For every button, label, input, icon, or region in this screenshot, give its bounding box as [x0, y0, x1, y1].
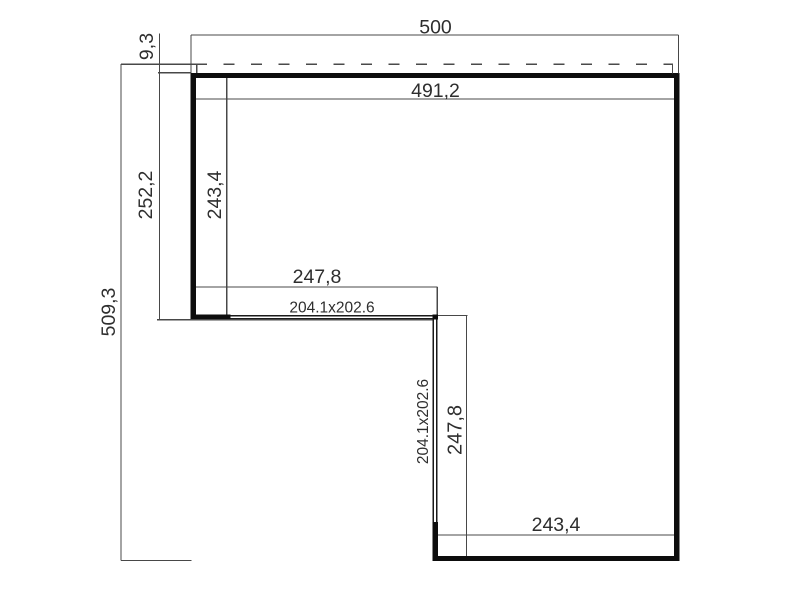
svg-text:9,3: 9,3 — [136, 33, 158, 60]
svg-text:243,4: 243,4 — [532, 514, 581, 536]
svg-text:204.1x202.6: 204.1x202.6 — [415, 379, 432, 464]
svg-text:252,2: 252,2 — [135, 171, 157, 220]
svg-text:204.1x202.6: 204.1x202.6 — [289, 299, 374, 316]
svg-text:491,2: 491,2 — [411, 80, 460, 102]
svg-text:247,8: 247,8 — [293, 266, 342, 288]
svg-text:500: 500 — [419, 17, 452, 39]
svg-text:243,4: 243,4 — [204, 170, 226, 219]
svg-text:247,8: 247,8 — [445, 405, 467, 455]
svg-text:509,3: 509,3 — [98, 288, 120, 337]
